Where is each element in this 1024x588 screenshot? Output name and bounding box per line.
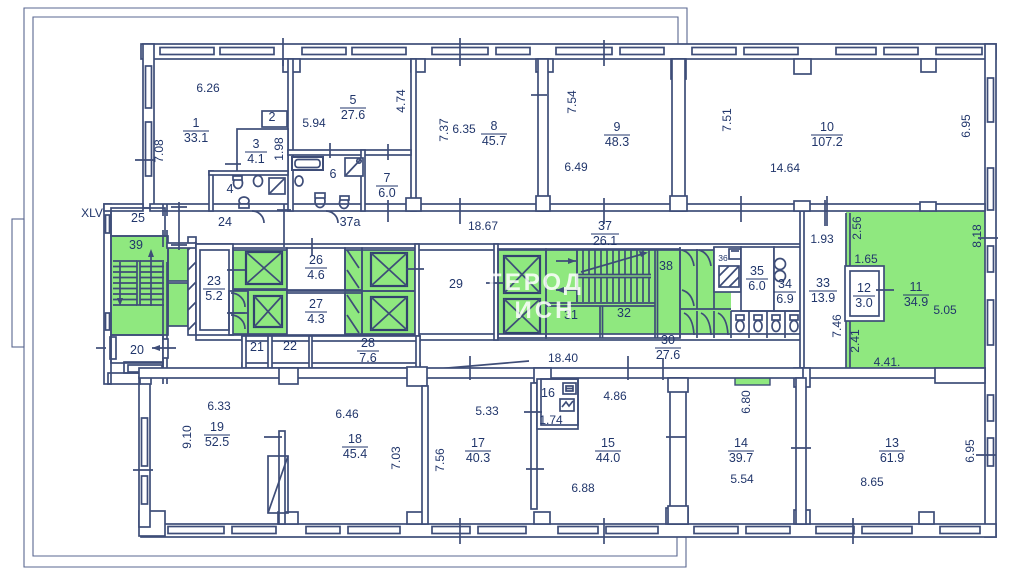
svg-text:4.6: 4.6 xyxy=(307,268,324,282)
svg-text:2: 2 xyxy=(269,110,276,124)
svg-text:18.40: 18.40 xyxy=(548,351,578,365)
svg-text:1.65: 1.65 xyxy=(854,252,878,266)
svg-text:4.1: 4.1 xyxy=(247,152,264,166)
svg-text:ИСН: ИСН xyxy=(515,297,576,324)
svg-text:6.0: 6.0 xyxy=(748,279,765,293)
svg-text:18.67: 18.67 xyxy=(468,219,498,233)
svg-text:ГЕРОД: ГЕРОД xyxy=(488,269,584,296)
svg-text:1.98: 1.98 xyxy=(272,137,286,161)
svg-text:22: 22 xyxy=(283,339,297,353)
svg-text:11: 11 xyxy=(910,280,923,294)
svg-text:7.54: 7.54 xyxy=(565,90,579,114)
svg-text:6.49: 6.49 xyxy=(564,160,588,174)
svg-text:XLV: XLV xyxy=(81,206,103,220)
svg-text:15: 15 xyxy=(601,436,615,450)
svg-text:4.86: 4.86 xyxy=(603,389,627,403)
svg-text:44.0: 44.0 xyxy=(596,451,620,465)
svg-text:5.54: 5.54 xyxy=(730,472,754,486)
svg-text:39: 39 xyxy=(129,238,143,252)
svg-text:20: 20 xyxy=(130,343,144,357)
svg-text:1: 1 xyxy=(193,116,200,130)
svg-text:45.7: 45.7 xyxy=(482,134,506,148)
svg-text:26: 26 xyxy=(309,253,323,267)
svg-text:40.3: 40.3 xyxy=(466,451,490,465)
svg-text:34: 34 xyxy=(778,277,792,291)
svg-text:17: 17 xyxy=(471,436,485,450)
svg-text:61.9: 61.9 xyxy=(880,451,904,465)
svg-text:13: 13 xyxy=(885,436,899,450)
svg-text:6.46: 6.46 xyxy=(335,407,359,421)
svg-text:7.46: 7.46 xyxy=(830,314,844,338)
svg-text:48.3: 48.3 xyxy=(605,135,629,149)
svg-text:10: 10 xyxy=(820,120,834,134)
svg-text:28: 28 xyxy=(361,336,375,350)
svg-text:8.65: 8.65 xyxy=(860,475,884,489)
svg-text:36: 36 xyxy=(718,253,728,263)
svg-text:3.0: 3.0 xyxy=(855,296,872,310)
svg-text:7.08: 7.08 xyxy=(152,139,166,163)
svg-text:6.35: 6.35 xyxy=(452,122,476,136)
svg-text:5.33: 5.33 xyxy=(475,404,499,418)
svg-text:33: 33 xyxy=(816,276,830,290)
svg-text:107.2: 107.2 xyxy=(811,135,842,149)
svg-text:33.1: 33.1 xyxy=(184,131,208,145)
svg-text:30: 30 xyxy=(661,333,675,347)
svg-text:16: 16 xyxy=(541,386,555,400)
svg-text:45.4: 45.4 xyxy=(343,447,367,461)
svg-text:19: 19 xyxy=(210,420,224,434)
svg-text:1.74: 1.74 xyxy=(539,413,563,427)
svg-text:35: 35 xyxy=(750,264,764,278)
svg-text:14.64: 14.64 xyxy=(770,161,800,175)
svg-text:27: 27 xyxy=(309,297,323,311)
svg-text:6: 6 xyxy=(330,167,337,181)
svg-text:23: 23 xyxy=(207,274,221,288)
svg-text:5.05: 5.05 xyxy=(933,303,957,317)
svg-text:9.10: 9.10 xyxy=(180,425,194,449)
svg-text:4.3: 4.3 xyxy=(307,312,324,326)
svg-text:4.41.: 4.41. xyxy=(874,355,901,369)
svg-text:9: 9 xyxy=(614,120,621,134)
svg-text:27.6: 27.6 xyxy=(656,348,680,362)
svg-text:39.7: 39.7 xyxy=(729,451,753,465)
svg-text:24: 24 xyxy=(218,215,232,229)
svg-text:4.74: 4.74 xyxy=(394,89,408,113)
svg-text:14: 14 xyxy=(734,436,748,450)
svg-text:32: 32 xyxy=(617,306,631,320)
svg-text:6.88: 6.88 xyxy=(571,481,595,495)
svg-text:5.2: 5.2 xyxy=(205,289,222,303)
svg-text:37a: 37a xyxy=(340,215,361,229)
svg-text:6.95: 6.95 xyxy=(959,114,973,138)
svg-text:6.95: 6.95 xyxy=(963,439,977,463)
svg-text:7.6: 7.6 xyxy=(359,351,376,365)
svg-text:4: 4 xyxy=(227,182,234,196)
svg-text:38: 38 xyxy=(659,259,673,273)
svg-text:7.03: 7.03 xyxy=(389,446,403,470)
svg-text:6.33: 6.33 xyxy=(207,399,231,413)
svg-text:21: 21 xyxy=(250,340,264,354)
svg-text:2.56: 2.56 xyxy=(850,216,864,240)
svg-text:3: 3 xyxy=(253,137,260,151)
svg-text:34.9: 34.9 xyxy=(904,295,928,309)
svg-text:12: 12 xyxy=(857,281,871,295)
svg-text:2.41: 2.41 xyxy=(848,329,862,353)
svg-text:7.51: 7.51 xyxy=(720,108,734,132)
svg-text:18: 18 xyxy=(348,432,362,446)
svg-text:52.5: 52.5 xyxy=(205,435,229,449)
svg-text:7.37: 7.37 xyxy=(437,118,451,142)
svg-text:26.1: 26.1 xyxy=(593,234,617,248)
svg-text:1.93: 1.93 xyxy=(810,232,834,246)
svg-text:7: 7 xyxy=(384,171,391,185)
svg-text:8: 8 xyxy=(491,119,498,133)
svg-text:6.9: 6.9 xyxy=(776,292,793,306)
svg-text:37: 37 xyxy=(598,219,612,233)
svg-text:7.56: 7.56 xyxy=(433,448,447,472)
svg-text:5: 5 xyxy=(350,93,357,107)
svg-text:6.80: 6.80 xyxy=(739,390,753,414)
svg-text:6.26: 6.26 xyxy=(196,81,220,95)
svg-text:13.9: 13.9 xyxy=(811,291,835,305)
svg-text:5.94: 5.94 xyxy=(302,116,326,130)
svg-text:27.6: 27.6 xyxy=(341,108,365,122)
svg-text:8.18: 8.18 xyxy=(970,224,984,248)
svg-text:29: 29 xyxy=(449,277,463,291)
svg-text:6.0: 6.0 xyxy=(378,186,395,200)
svg-text:25: 25 xyxy=(131,211,145,225)
